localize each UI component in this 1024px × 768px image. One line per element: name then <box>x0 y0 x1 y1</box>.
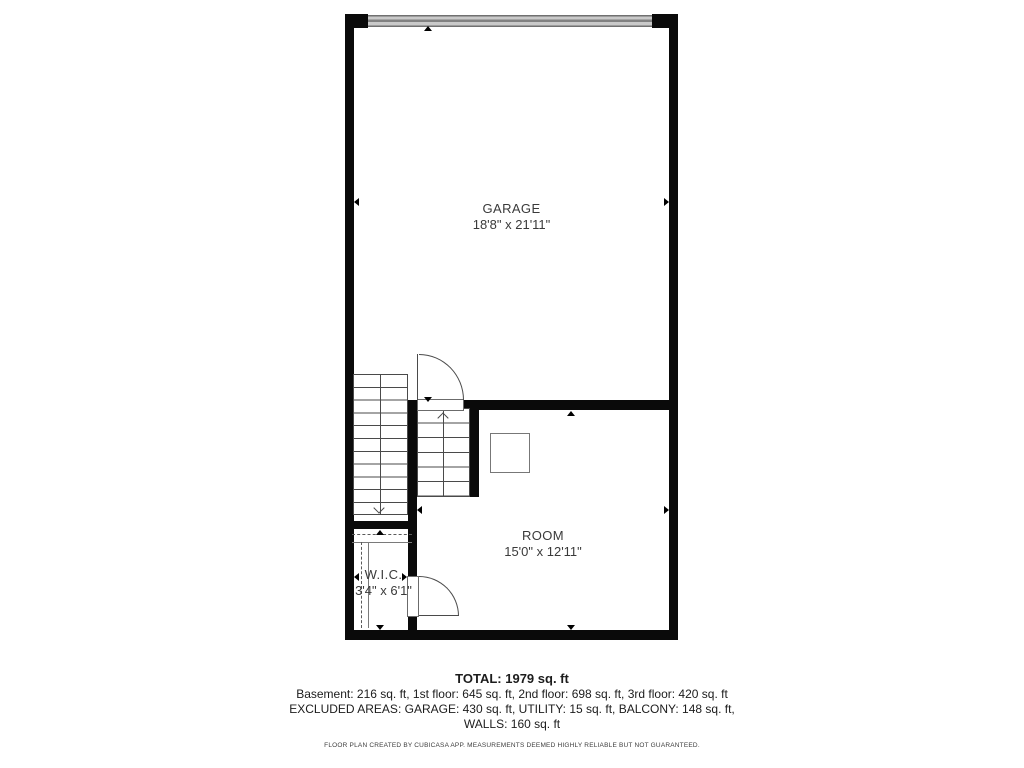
wall-stairs-right <box>470 400 479 497</box>
walls-area-text: WALLS: 160 sq. ft <box>0 717 1024 732</box>
dimension-arrow <box>376 625 384 630</box>
garage-door <box>368 15 652 27</box>
wall-left <box>345 14 354 640</box>
staircase-upper-flight <box>353 374 408 515</box>
disclaimer-text: FLOOR PLAN CREATED BY CUBICASA APP. MEAS… <box>0 742 1024 749</box>
room-label-wic: W.I.C. 3'4" x 6'1" <box>326 567 441 598</box>
room-label-room: ROOM 15'0" x 12'11" <box>417 528 669 559</box>
total-area-text: TOTAL: 1979 sq. ft <box>0 671 1024 687</box>
area-summary: TOTAL: 1979 sq. ft Basement: 216 sq. ft,… <box>0 671 1024 749</box>
room-label-garage: GARAGE 18'8" x 21'11" <box>345 201 678 232</box>
room-dimensions: 3'4" x 6'1" <box>326 583 441 599</box>
wardrobe-square <box>490 433 530 473</box>
excluded-areas-text: EXCLUDED AREAS: GARAGE: 430 sq. ft, UTIL… <box>0 702 1024 717</box>
dimension-arrow <box>424 397 432 402</box>
dimension-arrow <box>664 506 669 514</box>
room-dimensions: 15'0" x 12'11" <box>417 544 669 560</box>
wall-stair-divider-upper <box>408 400 417 577</box>
room-name: ROOM <box>417 528 669 544</box>
wall-garage-room-right <box>464 400 669 410</box>
wall-right <box>669 14 678 640</box>
door-swing-arc-garage <box>419 354 464 400</box>
wall-stair-divider-lower <box>408 616 417 630</box>
dimension-arrow <box>417 506 422 514</box>
room-dimensions: 18'8" x 21'11" <box>345 217 678 233</box>
wall-top-right-corner <box>652 14 678 28</box>
room-name: W.I.C. <box>326 567 441 583</box>
wall-wic-top <box>345 521 417 529</box>
dimension-arrow <box>567 625 575 630</box>
wall-bottom <box>345 630 678 640</box>
wall-top-left-corner <box>345 14 368 28</box>
dimension-arrow <box>424 26 432 31</box>
door-leaf-garage <box>417 354 418 400</box>
floor-plan-page: GARAGE 18'8" x 21'11" ROOM 15'0" x 12'11… <box>0 0 1024 768</box>
dimension-arrow <box>567 411 575 416</box>
room-name: GARAGE <box>345 201 678 217</box>
dimension-arrow <box>376 530 384 535</box>
floor-plan: GARAGE 18'8" x 21'11" ROOM 15'0" x 12'11… <box>345 14 678 640</box>
floor-areas-text: Basement: 216 sq. ft, 1st floor: 645 sq.… <box>0 687 1024 702</box>
